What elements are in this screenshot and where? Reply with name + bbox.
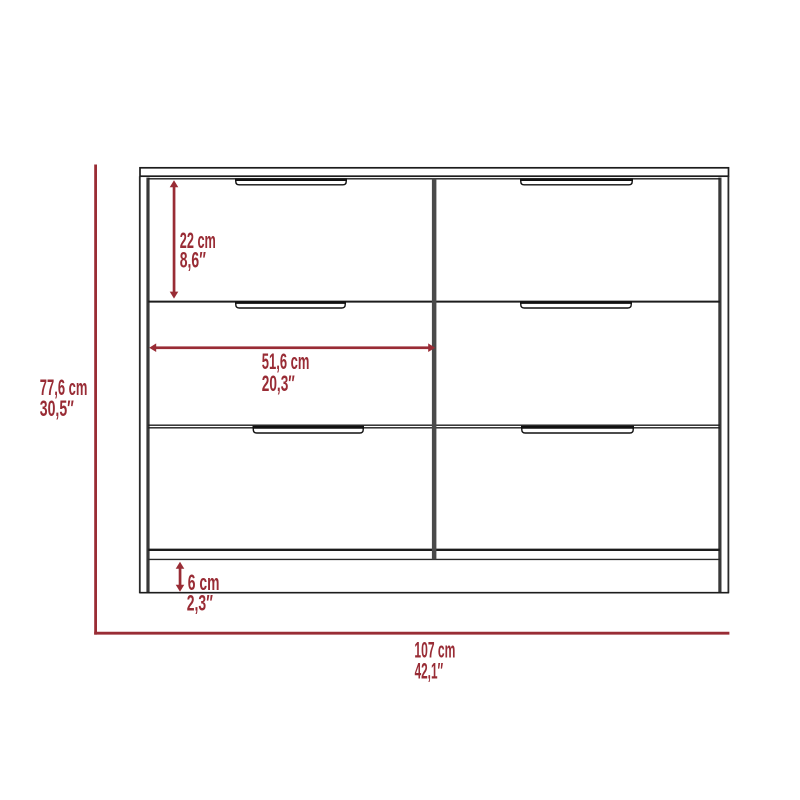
svg-text:42,1″: 42,1″ <box>415 659 444 684</box>
svg-text:2,3″: 2,3″ <box>187 590 213 615</box>
svg-text:51,6 cm: 51,6 cm <box>262 349 310 373</box>
svg-text:30,5″: 30,5″ <box>40 396 74 421</box>
svg-text:8,6″: 8,6″ <box>180 247 206 272</box>
svg-text:20,3″: 20,3″ <box>262 372 295 396</box>
